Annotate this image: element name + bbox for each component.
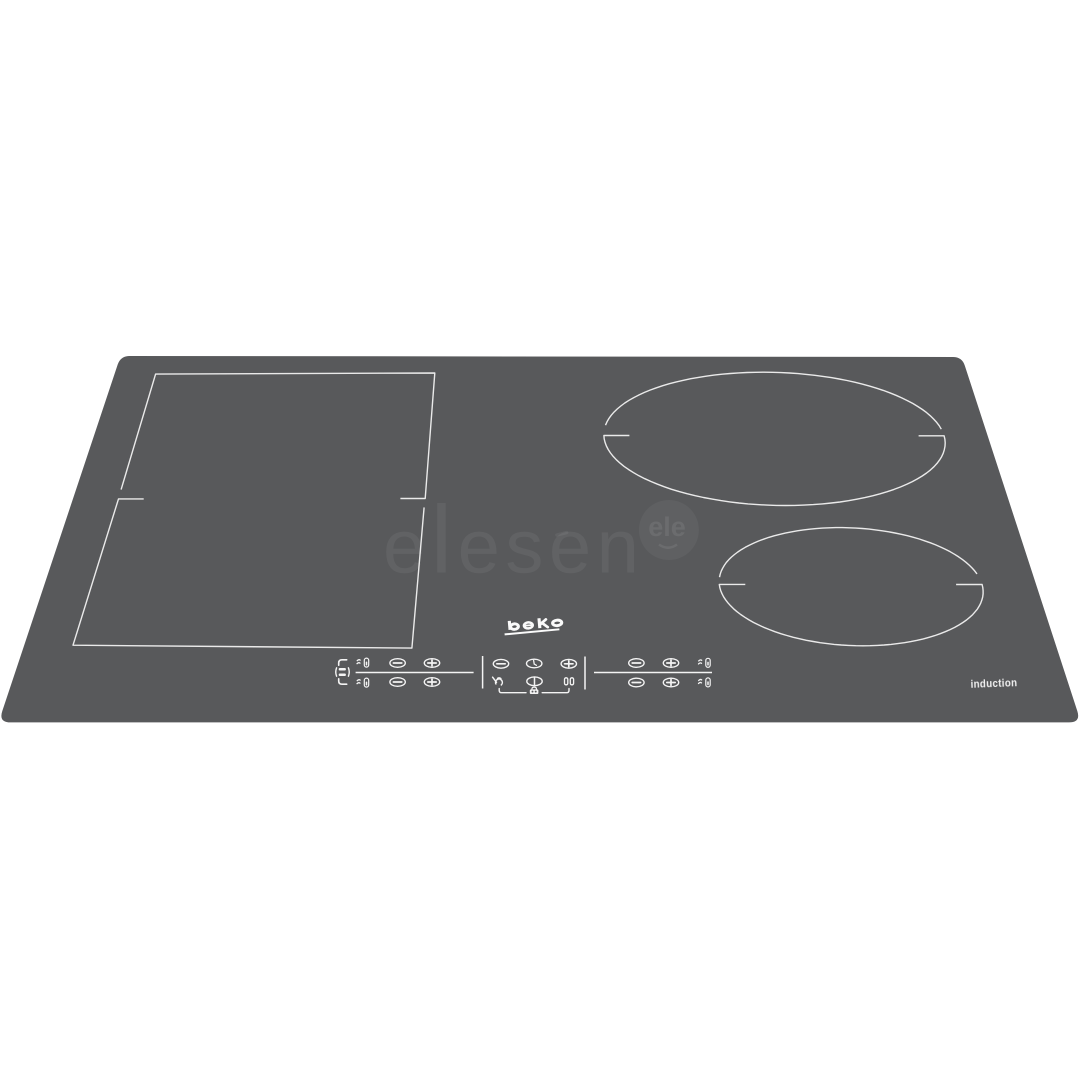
svg-text:ele: ele bbox=[648, 512, 686, 542]
